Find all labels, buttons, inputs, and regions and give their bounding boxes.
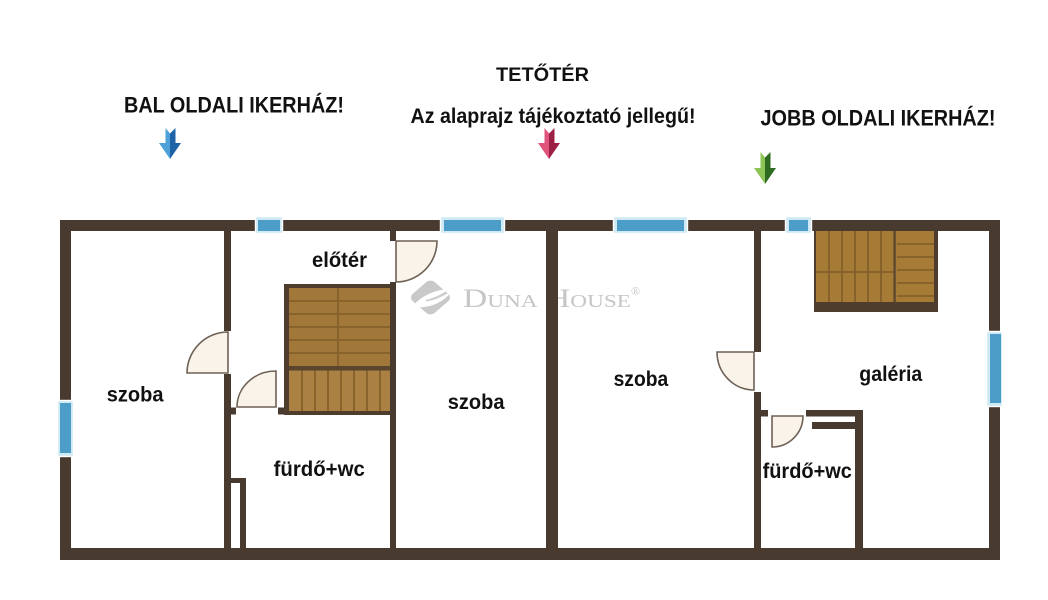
svg-text:®: ® — [631, 284, 640, 298]
svg-text:TETŐTÉR: TETŐTÉR — [496, 64, 589, 86]
svg-text:galéria: galéria — [859, 363, 922, 386]
svg-text:szoba: szoba — [107, 384, 164, 407]
svg-text:fürdő+wc: fürdő+wc — [763, 460, 853, 483]
svg-text:BAL OLDALI IKERHÁZ!: BAL OLDALI IKERHÁZ! — [124, 93, 344, 118]
svg-text:Az alaprajz tájékoztató jelleg: Az alaprajz tájékoztató jellegű! — [411, 104, 696, 128]
svg-text:JOBB OLDALI IKERHÁZ!: JOBB OLDALI IKERHÁZ! — [761, 106, 996, 131]
svg-text:szoba: szoba — [614, 368, 669, 391]
svg-text:szoba: szoba — [448, 391, 505, 414]
svg-text:előtér: előtér — [312, 249, 367, 272]
svg-text:fürdő+wc: fürdő+wc — [274, 458, 366, 481]
